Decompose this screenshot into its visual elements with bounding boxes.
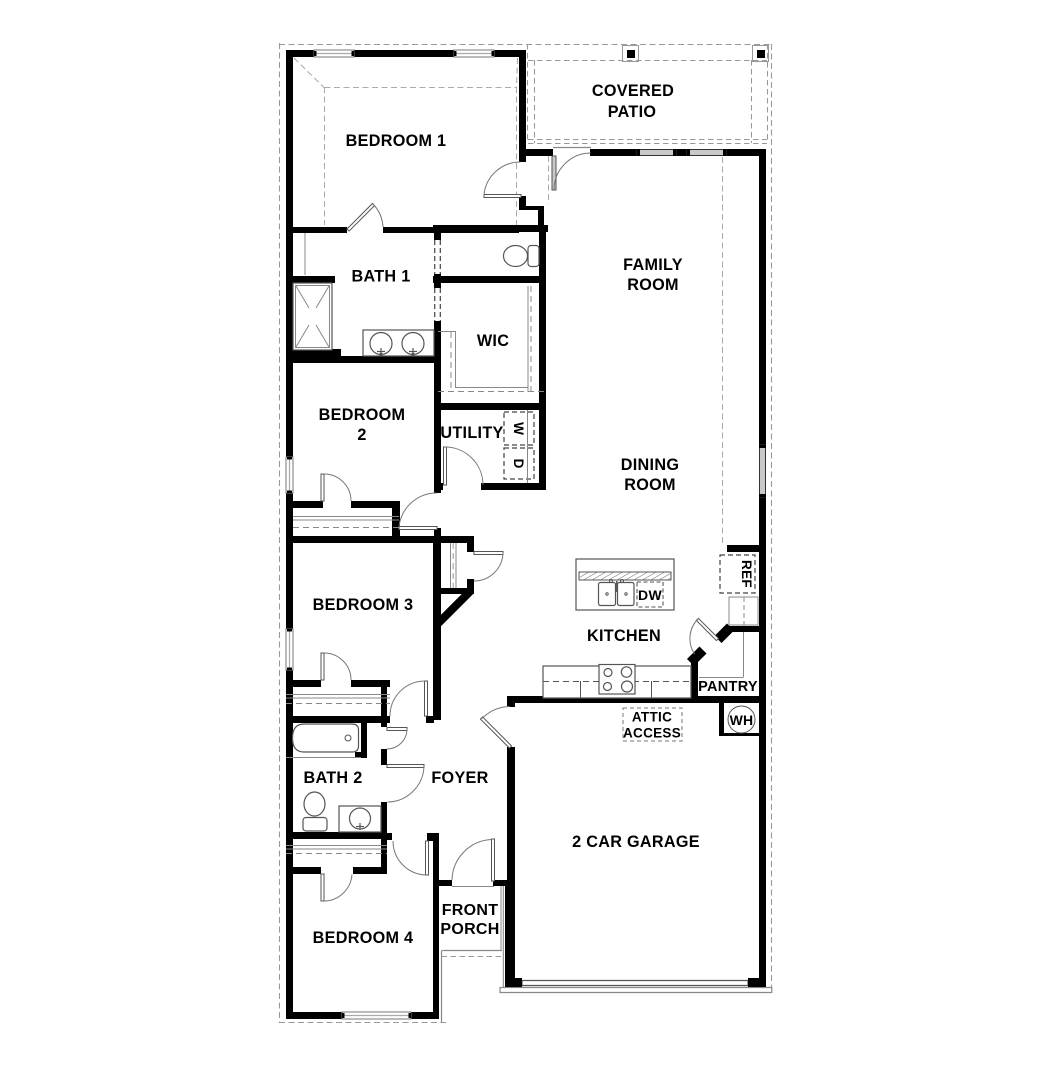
svg-text:ATTIC: ATTIC [632, 710, 672, 725]
svg-text:FAMILY: FAMILY [623, 256, 683, 274]
svg-text:WH: WH [730, 712, 754, 728]
svg-text:BATH 2: BATH 2 [303, 769, 362, 787]
svg-text:DW: DW [638, 587, 662, 603]
svg-text:PANTRY: PANTRY [698, 679, 758, 695]
svg-text:BEDROOM 1: BEDROOM 1 [346, 132, 447, 150]
svg-text:D: D [511, 459, 526, 469]
svg-text:2 CAR GARAGE: 2 CAR GARAGE [572, 833, 700, 851]
svg-text:W: W [511, 422, 526, 435]
svg-text:KITCHEN: KITCHEN [587, 627, 661, 645]
svg-text:BEDROOM: BEDROOM [319, 406, 406, 424]
svg-text:FOYER: FOYER [431, 769, 488, 787]
svg-text:BEDROOM 4: BEDROOM 4 [313, 929, 414, 947]
svg-text:COVERED: COVERED [592, 82, 674, 100]
svg-text:REF: REF [739, 560, 754, 588]
svg-text:ROOM: ROOM [627, 276, 679, 294]
svg-text:ACCESS: ACCESS [623, 726, 681, 741]
svg-text:WIC: WIC [477, 332, 509, 350]
svg-text:DINING: DINING [621, 456, 679, 474]
svg-text:BEDROOM 3: BEDROOM 3 [313, 596, 414, 614]
svg-text:PORCH: PORCH [440, 921, 499, 938]
svg-text:PATIO: PATIO [608, 103, 657, 121]
svg-text:2: 2 [357, 426, 366, 444]
svg-text:UTILITY: UTILITY [440, 424, 503, 442]
svg-text:FRONT: FRONT [442, 902, 499, 919]
svg-text:ROOM: ROOM [624, 476, 676, 494]
svg-text:BATH 1: BATH 1 [351, 268, 410, 286]
